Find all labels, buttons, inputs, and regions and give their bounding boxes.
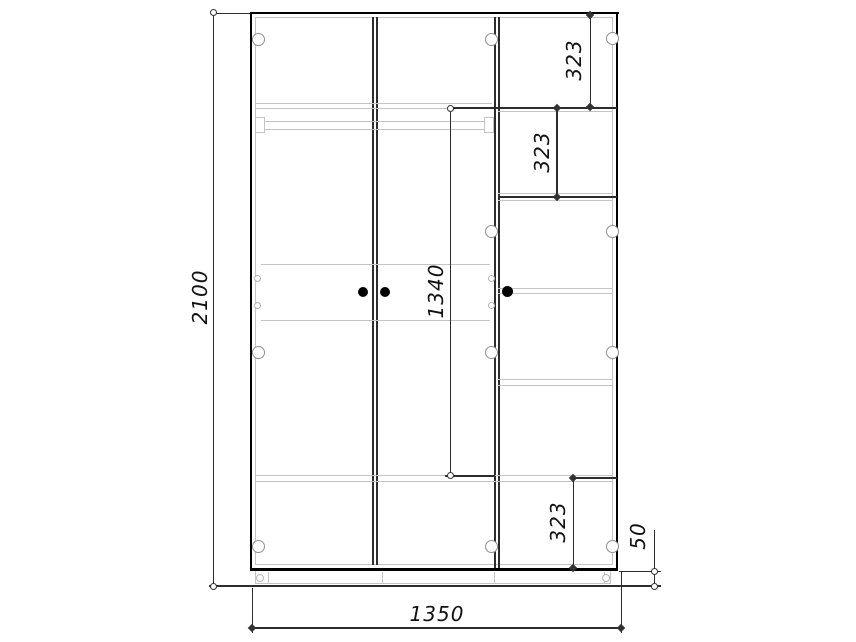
inner-right-line	[612, 17, 613, 565]
middle-door-handle	[380, 287, 390, 297]
hinge-icon	[485, 540, 498, 553]
dim-323-upper-line	[556, 107, 558, 197]
dim-50-line	[654, 530, 656, 586]
dim-1350-marker-right	[617, 623, 625, 631]
hanging-rod-bottom	[263, 129, 485, 130]
hinge-icon	[606, 32, 619, 45]
dim-1340-line	[450, 108, 452, 476]
left-door-handle	[358, 287, 368, 297]
dim-1350-label: 1350	[377, 603, 497, 625]
dim-323-top-line	[590, 14, 592, 107]
plinth-tick-1	[268, 572, 269, 583]
right-shelf-3-light-a	[498, 288, 613, 289]
hinge-icon	[485, 225, 498, 238]
dim-2100-label: 2100	[189, 237, 211, 357]
dim-1340-label: 1340	[425, 231, 447, 351]
door-mid-line-upper	[261, 264, 490, 265]
inner-left-line	[255, 17, 256, 565]
shelf-pin-icon	[488, 302, 495, 309]
hanging-rod-top	[263, 121, 485, 122]
shelf-pin-icon	[488, 275, 495, 282]
partition-line-left	[494, 17, 496, 568]
hinge-icon	[252, 346, 265, 359]
rod-bracket-right	[484, 117, 494, 133]
hinge-icon	[252, 540, 265, 553]
door-mid-line-lower	[261, 320, 490, 321]
dim-323-bottom-line	[573, 477, 575, 568]
dim-1350-line	[252, 627, 621, 629]
right-shelf-5-line	[573, 477, 617, 479]
right-shelf-4-light-a	[498, 379, 613, 380]
inner-top-line	[256, 17, 613, 18]
floor-line	[209, 585, 661, 587]
dim-50-marker-top	[651, 568, 658, 575]
door-gap-line-left	[372, 17, 374, 565]
plinth-leg-circle-right	[602, 574, 610, 582]
plinth-tick-3	[494, 572, 495, 583]
dim-50-label: 50	[627, 476, 649, 596]
dim-2100-marker-bottom	[210, 583, 217, 590]
wardrobe-technical-drawing: 2100 1350 323 323 1340 323 50	[0, 0, 856, 642]
dim-323-bottom-label: 323	[547, 462, 569, 582]
dim-1340-marker-top	[447, 105, 454, 112]
dim-2100-ext-top	[213, 13, 250, 15]
right-shelf-3-light-b	[498, 293, 613, 294]
dim-1340-marker-bottom	[447, 472, 454, 479]
cabinet-right-side	[616, 12, 618, 571]
dim-323-upper-label: 323	[531, 92, 553, 212]
dim-2100-marker-top	[210, 9, 217, 16]
wardrobe-top-shelf-upper	[256, 103, 492, 104]
dim-50-marker-bottom	[651, 583, 658, 590]
rod-bracket-left	[255, 117, 265, 133]
right-door-handle	[502, 286, 513, 297]
hinge-icon	[485, 346, 498, 359]
plinth-leg-circle-left	[256, 574, 264, 582]
plinth-tick-2	[382, 572, 383, 583]
shelf-pin-icon	[254, 275, 261, 282]
plinth-bottom-line	[255, 583, 611, 584]
hinge-icon	[606, 346, 619, 359]
hinge-icon	[485, 33, 498, 46]
hinge-icon	[252, 33, 265, 46]
door-gap-line-right	[376, 17, 378, 565]
hinge-icon	[606, 540, 619, 553]
right-shelf-4-light-b	[498, 385, 613, 386]
dim-323-top-label: 323	[563, 0, 585, 120]
cabinet-left-side	[250, 12, 252, 571]
dim-1350-marker-left	[248, 623, 256, 631]
dim-323-top-marker-b	[586, 103, 594, 111]
dim-2100-line	[213, 12, 215, 586]
shelf-pin-icon	[254, 302, 261, 309]
hinge-icon	[606, 225, 619, 238]
